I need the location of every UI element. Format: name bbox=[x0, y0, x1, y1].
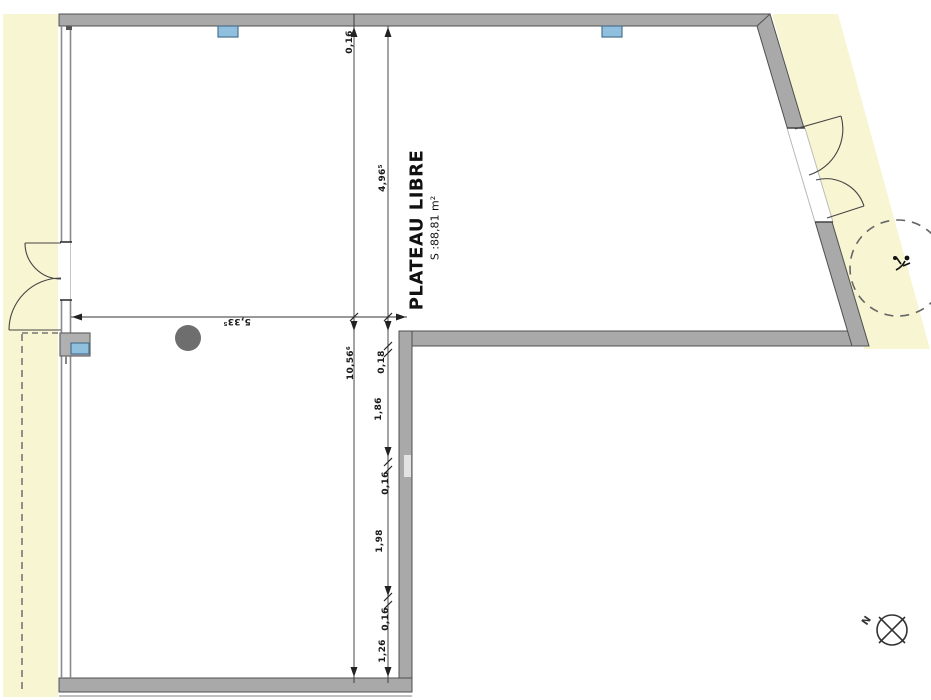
dim-label-wall-top: 0,16 bbox=[345, 30, 355, 53]
bottom-wall bbox=[59, 678, 412, 692]
pier-window bbox=[71, 343, 89, 354]
dim-label-width: 5,33⁵ bbox=[223, 316, 251, 326]
room-name-label: PLATEAU LIBRE bbox=[407, 150, 428, 311]
north-compass-icon bbox=[877, 615, 907, 645]
top-wall bbox=[59, 14, 770, 26]
inner-vertical-wall bbox=[399, 331, 412, 692]
dim-label-chain-3: 0,16 bbox=[381, 471, 391, 494]
dim-label-chain-5: 0,16 bbox=[381, 607, 391, 630]
dim-label-chain-2: 1,86 bbox=[374, 397, 384, 420]
column bbox=[175, 325, 201, 351]
wall-recess bbox=[404, 455, 411, 477]
dim-label-total-height: 10,56⁶ bbox=[346, 346, 356, 380]
left-wall-top-jamb bbox=[66, 26, 72, 30]
top-wall-vent-left bbox=[218, 26, 238, 37]
floor-plan: PLATEAU LIBRE S :88,81 m² 0,16 4,96⁵ 5,3… bbox=[0, 0, 931, 700]
plan-drawing bbox=[0, 0, 931, 700]
dim-label-upper-height: 4,96⁵ bbox=[378, 164, 388, 192]
dim-label-chain-1: 0,18 bbox=[377, 350, 387, 373]
left-exterior-zone bbox=[3, 14, 58, 697]
room-area-label: S :88,81 m² bbox=[429, 196, 442, 260]
dimension-lines bbox=[71, 14, 407, 683]
top-wall-vent-right bbox=[602, 26, 622, 37]
dim-label-chain-6: 1,26 bbox=[378, 639, 388, 662]
mid-wall bbox=[399, 331, 864, 346]
dim-label-chain-4: 1,98 bbox=[375, 529, 385, 552]
